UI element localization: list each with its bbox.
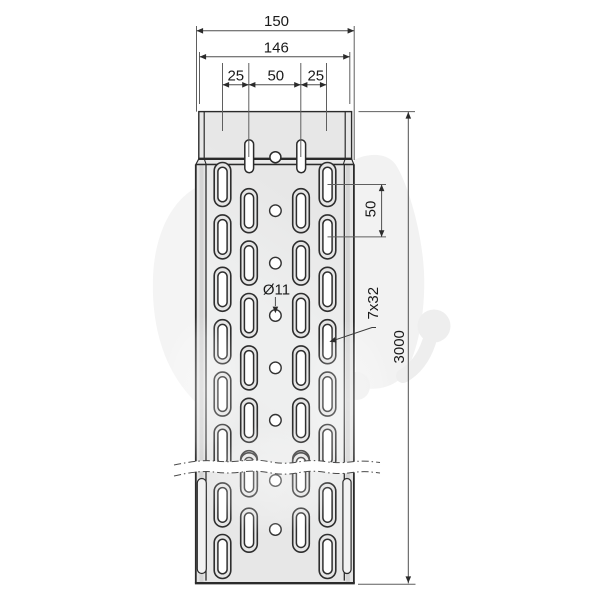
svg-text:7x32: 7x32 [365, 287, 382, 320]
svg-text:25: 25 [307, 68, 324, 85]
svg-text:146: 146 [264, 40, 289, 57]
svg-text:50: 50 [267, 68, 284, 85]
svg-text:25: 25 [227, 68, 244, 85]
svg-text:50: 50 [363, 201, 380, 218]
svg-text:150: 150 [264, 13, 289, 30]
svg-text:Ø11: Ø11 [263, 282, 290, 299]
svg-text:3000: 3000 [391, 330, 408, 363]
